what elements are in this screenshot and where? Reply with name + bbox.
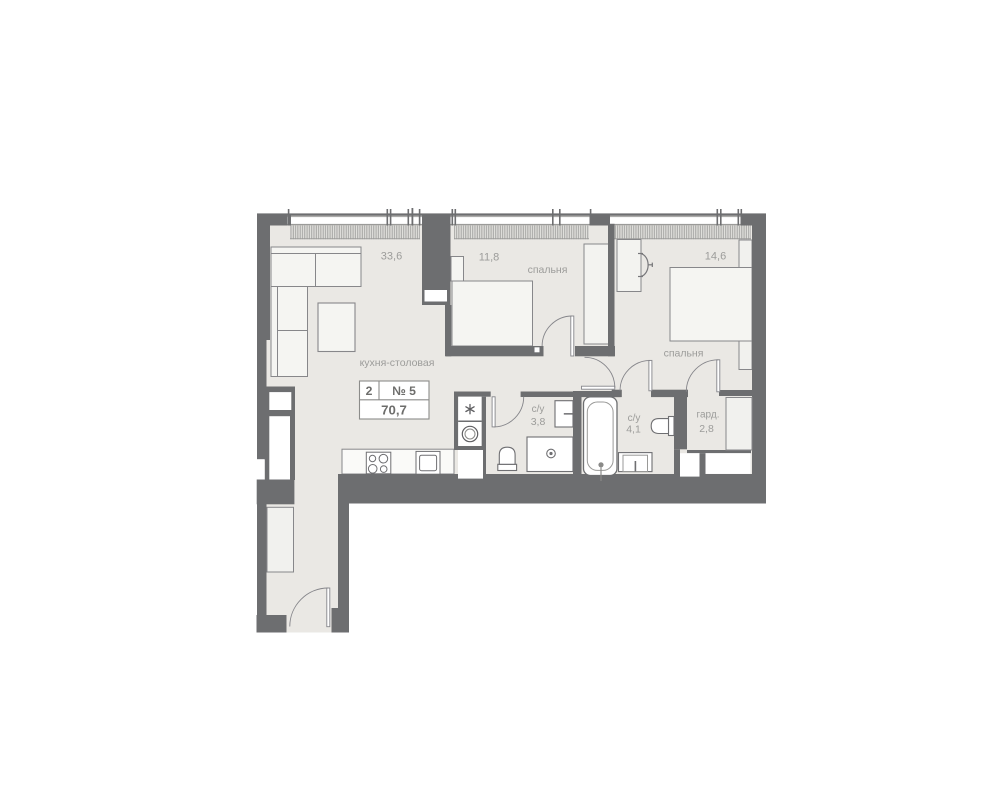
- svg-text:14,6: 14,6: [705, 251, 726, 263]
- svg-text:33,6: 33,6: [381, 251, 402, 263]
- svg-text:70,7: 70,7: [381, 402, 407, 417]
- svg-text:спальня: спальня: [528, 264, 568, 276]
- svg-text:4,1: 4,1: [626, 424, 641, 436]
- svg-text:спальня: спальня: [664, 348, 704, 360]
- svg-text:2,8: 2,8: [699, 423, 714, 435]
- svg-text:с/у: с/у: [628, 413, 641, 424]
- svg-text:с/у: с/у: [532, 404, 545, 415]
- svg-text:кухня-столовая: кухня-столовая: [360, 357, 435, 369]
- svg-text:3,8: 3,8: [531, 416, 546, 428]
- svg-text:11,8: 11,8: [479, 252, 500, 264]
- svg-text:2: 2: [366, 384, 373, 398]
- svg-text:№ 5: № 5: [392, 384, 416, 398]
- svg-text:гард.: гард.: [697, 410, 720, 421]
